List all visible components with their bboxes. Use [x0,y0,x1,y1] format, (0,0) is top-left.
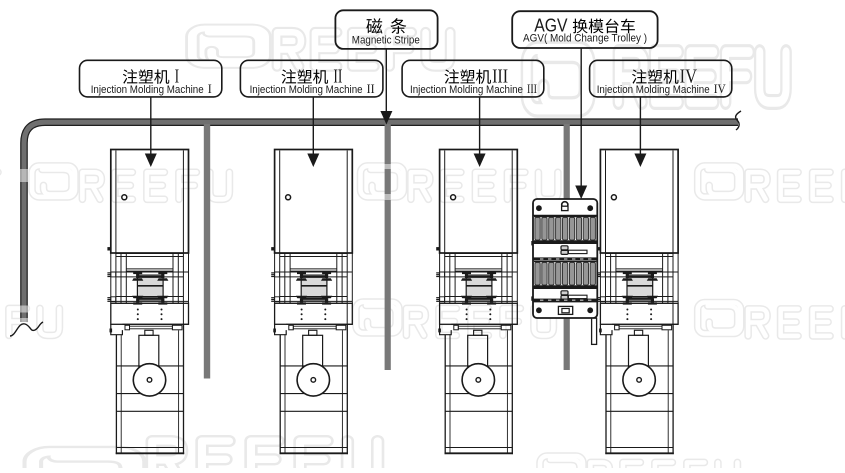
svg-text:Magnetic Stripe: Magnetic Stripe [352,34,420,46]
svg-text:I: I [208,82,212,96]
svg-text:II: II [367,82,375,96]
svg-text:Injection Molding Machine: Injection Molding Machine [91,84,204,96]
svg-text:Injection Molding Machine: Injection Molding Machine [250,84,363,96]
svg-text:Injection Molding Machine: Injection Molding Machine [410,84,523,96]
svg-text:Injection Molding Machine: Injection Molding Machine [597,84,710,96]
svg-text:III: III [527,82,537,96]
svg-text:AGV( Mold Change Trolley ): AGV( Mold Change Trolley ) [523,33,647,45]
svg-text:IV: IV [714,82,726,96]
